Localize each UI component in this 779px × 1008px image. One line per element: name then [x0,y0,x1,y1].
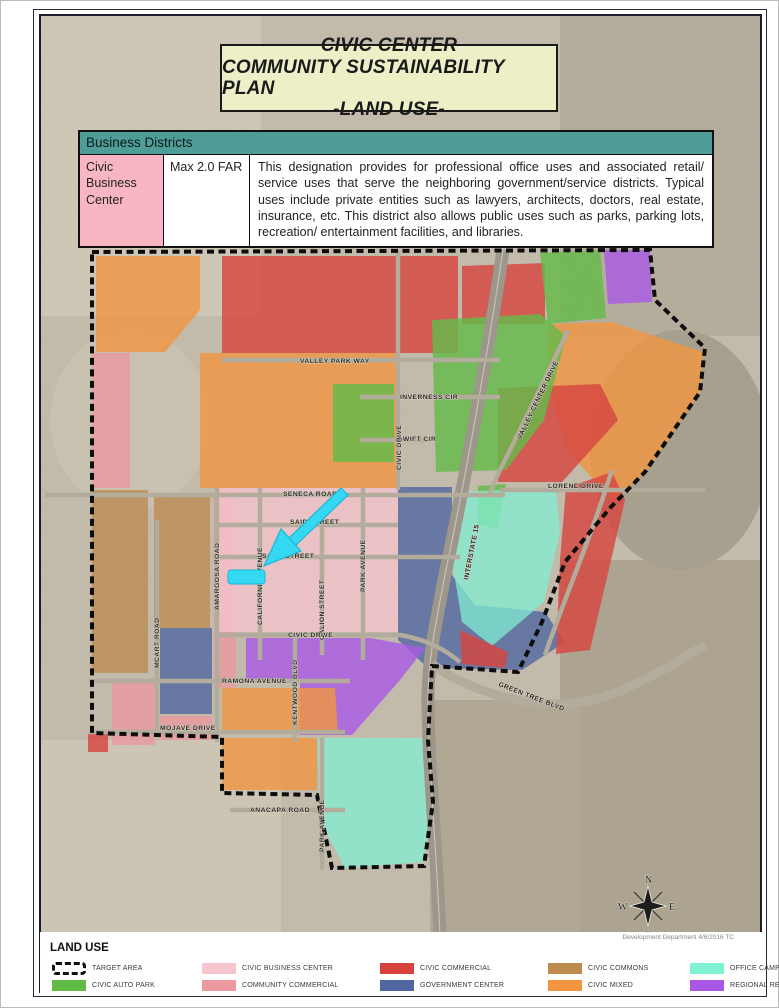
legend-grid: TARGET AREACIVIC BUSINESS CENTERCIVIC CO… [52,960,779,994]
legend-swatch [690,963,724,974]
legend-label: OFFICE CAMPUS [730,965,779,972]
legend-swatch [380,980,414,991]
title-block: CIVIC CENTER COMMUNITY SUSTAINABILITY PL… [220,44,558,112]
legend-label: REGIONAL RESOURCE [730,982,779,989]
legend-label: CIVIC COMMERCIAL [420,965,491,972]
title-line-3: -LAND USE- [333,99,445,120]
legend-swatch [380,963,414,974]
legend-swatch [52,980,86,991]
district-description-cell: This designation provides for profession… [250,155,712,246]
legend-label: COMMUNITY COMMERCIAL [242,982,338,989]
legend-label: CIVIC COMMONS [588,965,649,972]
legend-item-government-center: GOVERNMENT CENTER [380,980,548,991]
legend-swatch [548,963,582,974]
table-header: Business Districts [80,132,712,155]
legend-item-target-area: TARGET AREA [52,962,202,975]
legend-swatch [52,962,86,975]
credit-text: Development Department 4/6/2016 TC [622,934,734,941]
legend-item-civic-commons: CIVIC COMMONS [548,963,690,974]
legend-swatch [202,980,236,991]
far-standard-cell: Max 2.0 FAR [164,155,250,246]
legend-item-civic-auto-park: CIVIC AUTO PARK [52,980,202,991]
legend-title: LAND USE [50,942,109,954]
legend-label: CIVIC MIXED [588,982,633,989]
legend-label: CIVIC AUTO PARK [92,982,155,989]
legend-panel: Development Department 4/6/2016 TC LAND … [40,932,762,994]
legend-item-regional-resource: REGIONAL RESOURCE [690,980,779,991]
legend-swatch [690,980,724,991]
legend-label: TARGET AREA [92,965,143,972]
title-line-2: COMMUNITY SUSTAINABILITY PLAN [222,57,556,100]
legend-item-civic-mixed: CIVIC MIXED [548,980,690,991]
legend-item-civic-business-center: CIVIC BUSINESS CENTER [202,963,380,974]
legend-item-community-commercial: COMMUNITY COMMERCIAL [202,980,380,991]
business-districts-table: Business Districts Civic Business Center… [78,130,714,248]
legend-label: GOVERNMENT CENTER [420,982,504,989]
table-row: Civic Business Center Max 2.0 FAR This d… [80,155,712,246]
legend-swatch [548,980,582,991]
legend-label: CIVIC BUSINESS CENTER [242,965,333,972]
legend-item-office-campus: OFFICE CAMPUS [690,963,779,974]
plan-sheet: VALLEY PARK WAY INVERNESS CIR SWIFT CIR … [0,0,779,1008]
title-line-1: CIVIC CENTER [321,35,457,56]
legend-swatch [202,963,236,974]
district-name-cell: Civic Business Center [80,155,164,246]
legend-item-civic-commercial: CIVIC COMMERCIAL [380,963,548,974]
